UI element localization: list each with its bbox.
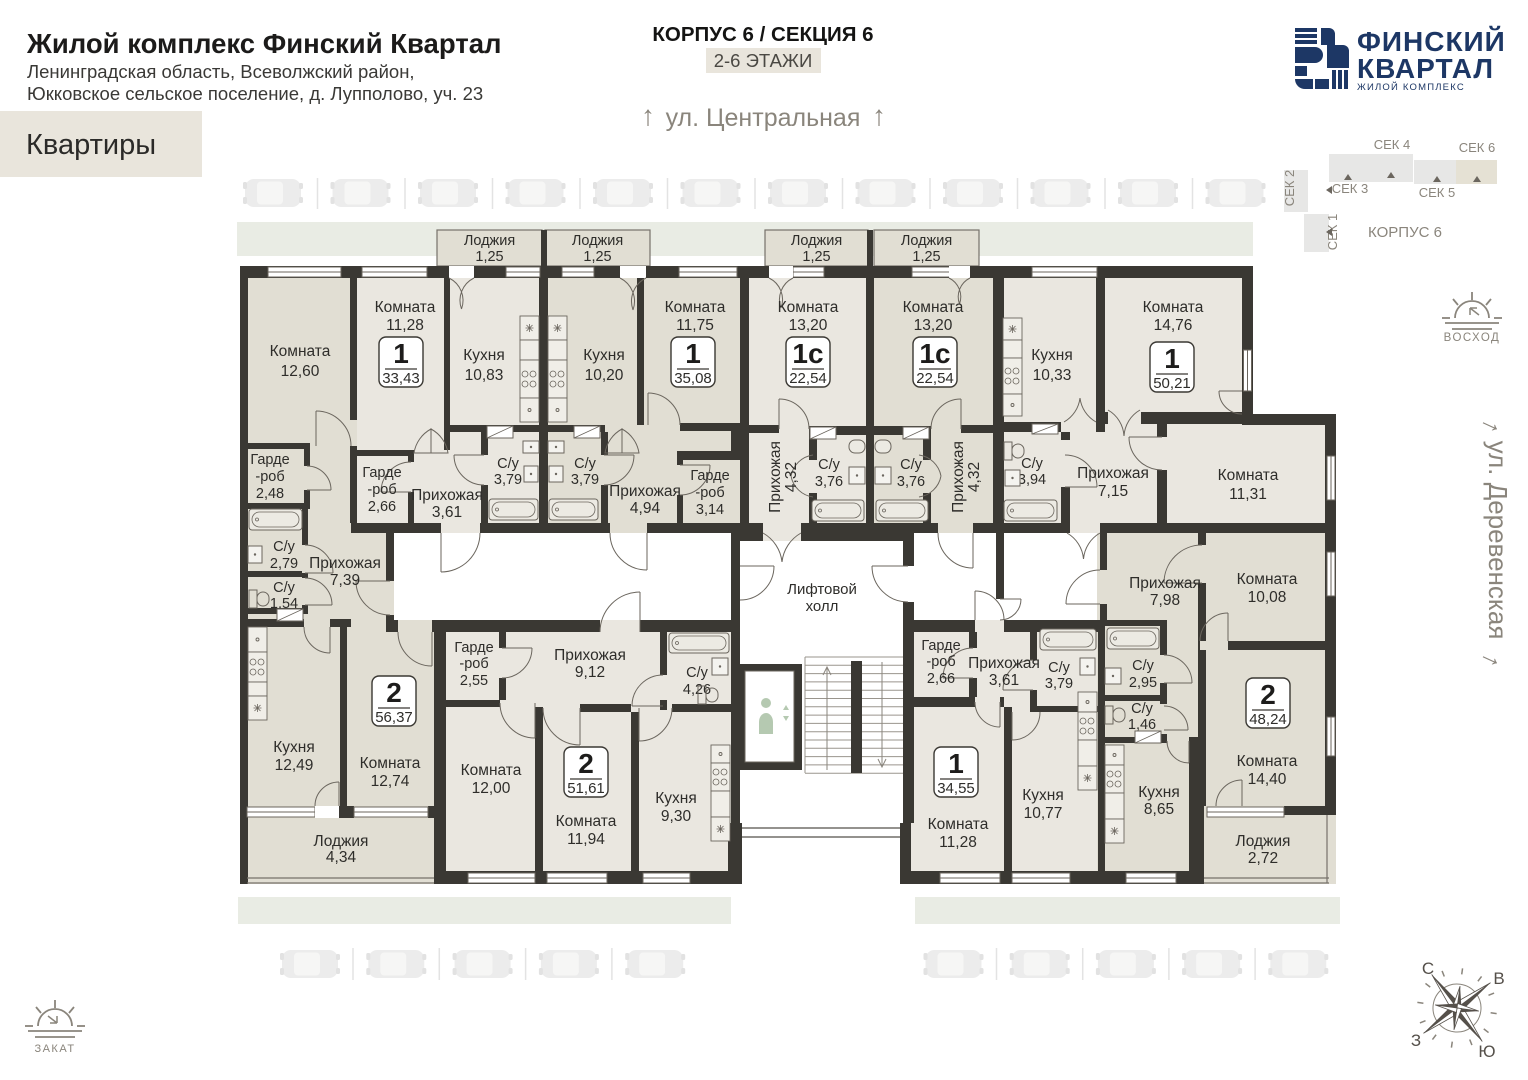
svg-text:10,77: 10,77 bbox=[1024, 805, 1063, 822]
svg-text:Комната: Комната bbox=[556, 813, 617, 830]
svg-text:11,75: 11,75 bbox=[676, 317, 714, 334]
svg-text:С/у: С/у bbox=[900, 457, 923, 473]
svg-text:11,31: 11,31 bbox=[1229, 486, 1267, 503]
svg-text:КВАРТАЛ: КВАРТАЛ bbox=[1357, 53, 1494, 84]
svg-text:Прихожая: Прихожая bbox=[1129, 575, 1201, 592]
svg-text:7,39: 7,39 bbox=[330, 572, 360, 589]
svg-text:4,32: 4,32 bbox=[966, 462, 983, 492]
svg-text:С/у: С/у bbox=[1021, 456, 1044, 472]
svg-text:1: 1 bbox=[393, 338, 409, 369]
svg-text:2,79: 2,79 bbox=[270, 556, 298, 572]
svg-text:13,20: 13,20 bbox=[789, 317, 828, 334]
svg-text:Гарде: Гарде bbox=[454, 640, 493, 656]
svg-text:Комната: Комната bbox=[1237, 753, 1298, 770]
svg-text:10,20: 10,20 bbox=[585, 367, 624, 384]
svg-text:Лоджия: Лоджия bbox=[464, 233, 515, 249]
svg-text:Комната: Комната bbox=[665, 299, 726, 316]
svg-text:2,72: 2,72 bbox=[1248, 850, 1278, 867]
svg-text:СЕК 3: СЕК 3 bbox=[1332, 181, 1368, 196]
svg-text:3,79: 3,79 bbox=[494, 472, 522, 488]
svg-text:22,54: 22,54 bbox=[916, 370, 954, 387]
svg-text:Прихожая: Прихожая bbox=[968, 655, 1040, 672]
svg-text:Комната: Комната bbox=[270, 343, 331, 360]
svg-text:Кухня: Кухня bbox=[655, 790, 696, 807]
svg-text:Прихожая: Прихожая bbox=[411, 487, 483, 504]
svg-text:Гарде: Гарде bbox=[362, 465, 401, 481]
svg-text:Лоджия: Лоджия bbox=[791, 233, 842, 249]
svg-text:Комната: Комната bbox=[778, 299, 839, 316]
svg-text:С/у: С/у bbox=[497, 456, 520, 472]
svg-text:3,76: 3,76 bbox=[815, 474, 843, 490]
svg-text:11,28: 11,28 bbox=[939, 834, 977, 851]
svg-text:1с: 1с bbox=[919, 338, 950, 369]
svg-text:СЕК 6: СЕК 6 bbox=[1459, 140, 1495, 155]
svg-text:50,21: 50,21 bbox=[1153, 375, 1191, 392]
svg-text:Лоджия: Лоджия bbox=[314, 833, 369, 850]
svg-text:↑: ↑ bbox=[641, 100, 655, 131]
svg-text:1,25: 1,25 bbox=[583, 249, 611, 265]
svg-text:С/у: С/у bbox=[1048, 660, 1071, 676]
svg-text:Лифтовой: Лифтовой bbox=[787, 581, 857, 598]
svg-text:Гарде: Гарде bbox=[690, 468, 729, 484]
svg-text:Кухня: Кухня bbox=[1138, 784, 1179, 801]
svg-text:Комната: Комната bbox=[928, 816, 989, 833]
svg-text:12,60: 12,60 bbox=[281, 363, 320, 380]
svg-text:11,94: 11,94 bbox=[567, 831, 605, 848]
svg-text:1,25: 1,25 bbox=[475, 249, 503, 265]
svg-text:3,61: 3,61 bbox=[989, 672, 1019, 689]
svg-text:12,00: 12,00 bbox=[472, 780, 511, 797]
svg-text:Жилой комплекс Финский Квартал: Жилой комплекс Финский Квартал bbox=[26, 28, 502, 59]
svg-text:1: 1 bbox=[1164, 343, 1180, 374]
svg-text:48,24: 48,24 bbox=[1249, 711, 1287, 728]
svg-text:Прихожая: Прихожая bbox=[554, 647, 626, 664]
svg-text:12,49: 12,49 bbox=[275, 757, 314, 774]
svg-text:3,14: 3,14 bbox=[696, 502, 724, 518]
svg-text:ул. Деревенская: ул. Деревенская bbox=[1483, 441, 1513, 640]
svg-text:3,79: 3,79 bbox=[571, 472, 599, 488]
svg-text:35,08: 35,08 bbox=[674, 370, 712, 387]
svg-text:11,28: 11,28 bbox=[386, 317, 424, 334]
svg-text:КОРПУС 6 / СЕКЦИЯ 6: КОРПУС 6 / СЕКЦИЯ 6 bbox=[652, 23, 873, 46]
svg-text:-роб: -роб bbox=[255, 469, 284, 485]
svg-text:3,79: 3,79 bbox=[1045, 676, 1073, 692]
svg-text:7,15: 7,15 bbox=[1098, 483, 1128, 500]
svg-text:Прихожая: Прихожая bbox=[767, 441, 784, 513]
svg-text:1: 1 bbox=[948, 748, 964, 779]
svg-text:С/у: С/у bbox=[1131, 701, 1154, 717]
svg-text:С/у: С/у bbox=[273, 539, 296, 555]
svg-text:З: З bbox=[1411, 1031, 1421, 1050]
svg-text:9,12: 9,12 bbox=[575, 664, 605, 681]
svg-text:22,54: 22,54 bbox=[789, 370, 827, 387]
svg-text:Кухня: Кухня bbox=[273, 739, 314, 756]
svg-text:Комната: Комната bbox=[360, 755, 421, 772]
svg-text:Прихожая: Прихожая bbox=[609, 483, 681, 500]
svg-text:8,65: 8,65 bbox=[1144, 801, 1174, 818]
svg-text:Лоджия: Лоджия bbox=[901, 233, 952, 249]
svg-text:4,32: 4,32 bbox=[783, 462, 800, 492]
svg-text:2,66: 2,66 bbox=[927, 671, 955, 687]
svg-text:СЕК 5: СЕК 5 bbox=[1419, 185, 1455, 200]
svg-text:СЕК 4: СЕК 4 bbox=[1374, 137, 1410, 152]
svg-text:2: 2 bbox=[1260, 679, 1276, 710]
svg-text:С/у: С/у bbox=[818, 457, 841, 473]
svg-text:4,34: 4,34 bbox=[326, 849, 357, 866]
svg-text:Гарде: Гарде bbox=[921, 638, 960, 654]
svg-text:Прихожая: Прихожая bbox=[950, 441, 967, 513]
svg-text:33,43: 33,43 bbox=[382, 370, 420, 387]
svg-text:ЗАКАТ: ЗАКАТ bbox=[34, 1043, 75, 1055]
svg-text:10,33: 10,33 bbox=[1033, 367, 1072, 384]
svg-text:2,55: 2,55 bbox=[460, 673, 488, 689]
svg-text:1с: 1с bbox=[792, 338, 823, 369]
svg-text:Юкковское сельское поселение,: Юкковское сельское поселение, д. Лупполо… bbox=[27, 83, 483, 104]
svg-text:51,61: 51,61 bbox=[567, 780, 605, 797]
svg-text:Комната: Комната bbox=[903, 299, 964, 316]
svg-text:2: 2 bbox=[578, 748, 594, 779]
svg-text:Лоджия: Лоджия bbox=[572, 233, 623, 249]
svg-text:34,55: 34,55 bbox=[937, 780, 975, 797]
svg-text:10,83: 10,83 bbox=[465, 367, 504, 384]
svg-text:1: 1 bbox=[685, 338, 701, 369]
svg-text:14,40: 14,40 bbox=[1248, 771, 1287, 788]
svg-text:56,37: 56,37 bbox=[375, 709, 413, 726]
svg-text:КОРПУС 6: КОРПУС 6 bbox=[1368, 224, 1442, 241]
svg-text:3,61: 3,61 bbox=[432, 504, 462, 521]
svg-text:Ленинградская область, Всеволж: Ленинградская область, Всеволжский район… bbox=[27, 61, 415, 82]
svg-text:10,08: 10,08 bbox=[1248, 589, 1287, 606]
svg-text:7,98: 7,98 bbox=[1150, 592, 1180, 609]
svg-text:3,94: 3,94 bbox=[1018, 472, 1046, 488]
svg-text:СЕК 2: СЕК 2 bbox=[1282, 170, 1297, 206]
svg-text:-роб: -роб bbox=[459, 656, 488, 672]
svg-text:2,95: 2,95 bbox=[1129, 675, 1157, 691]
svg-text:-роб: -роб bbox=[367, 482, 396, 498]
svg-text:Кухня: Кухня bbox=[463, 347, 504, 364]
svg-text:С/у: С/у bbox=[574, 456, 597, 472]
svg-text:В: В bbox=[1493, 969, 1504, 988]
svg-text:ул. Центральная: ул. Центральная bbox=[666, 104, 861, 132]
svg-text:9,30: 9,30 bbox=[661, 808, 692, 825]
svg-text:2-6 ЭТАЖИ: 2-6 ЭТАЖИ bbox=[714, 50, 813, 71]
svg-text:Комната: Комната bbox=[1143, 299, 1204, 316]
svg-text:Ю: Ю bbox=[1478, 1042, 1495, 1061]
svg-text:С: С bbox=[1422, 959, 1434, 978]
svg-text:1,25: 1,25 bbox=[912, 249, 940, 265]
svg-text:12,74: 12,74 bbox=[371, 773, 410, 790]
svg-text:Гарде: Гарде bbox=[250, 452, 289, 468]
svg-text:Комната: Комната bbox=[1237, 571, 1298, 588]
svg-text:С/у: С/у bbox=[1132, 658, 1155, 674]
svg-text:Прихожая: Прихожая bbox=[1077, 465, 1149, 482]
svg-text:Квартиры: Квартиры bbox=[26, 129, 156, 161]
svg-text:3,76: 3,76 bbox=[897, 474, 925, 490]
svg-text:1,25: 1,25 bbox=[802, 249, 830, 265]
svg-text:Комната: Комната bbox=[375, 299, 436, 316]
svg-text:14,76: 14,76 bbox=[1154, 317, 1193, 334]
svg-text:2: 2 bbox=[386, 677, 402, 708]
svg-text:↑: ↑ bbox=[872, 100, 886, 131]
svg-text:-роб: -роб bbox=[695, 485, 724, 501]
svg-text:С/у: С/у bbox=[273, 580, 296, 596]
svg-text:холл: холл bbox=[806, 598, 839, 615]
svg-text:ВОСХОД: ВОСХОД bbox=[1444, 332, 1501, 344]
svg-text:Комната: Комната bbox=[461, 762, 522, 779]
svg-text:Кухня: Кухня bbox=[1022, 787, 1063, 804]
svg-text:2,66: 2,66 bbox=[368, 499, 396, 515]
svg-text:ЖИЛОЙ КОМПЛЕКС: ЖИЛОЙ КОМПЛЕКС bbox=[1357, 81, 1465, 93]
svg-text:2,48: 2,48 bbox=[256, 486, 284, 502]
svg-text:С/у: С/у bbox=[686, 665, 709, 681]
svg-text:Кухня: Кухня bbox=[583, 347, 624, 364]
svg-text:Комната: Комната bbox=[1218, 467, 1279, 484]
svg-text:Прихожая: Прихожая bbox=[309, 555, 381, 572]
svg-text:Кухня: Кухня bbox=[1031, 347, 1072, 364]
svg-text:Лоджия: Лоджия bbox=[1236, 833, 1291, 850]
svg-text:13,20: 13,20 bbox=[914, 317, 953, 334]
svg-text:4,94: 4,94 bbox=[630, 500, 661, 517]
svg-text:-роб: -роб bbox=[926, 654, 955, 670]
